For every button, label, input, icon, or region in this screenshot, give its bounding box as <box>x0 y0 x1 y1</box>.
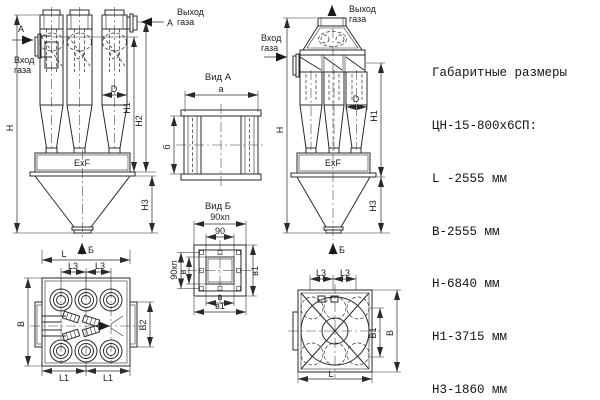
dimensions-spec-panel: Габаритные размеры ЦН-15-800х6СП: L -255… <box>432 30 567 400</box>
plan-view-bottom: L3 L3 В1 В L <box>288 268 401 383</box>
side-elevation-view: Выход газа Вход газа D Ех <box>261 4 390 255</box>
spec-row-B: В-2555 мм <box>432 224 567 242</box>
view-a-title: Вид А <box>205 72 232 83</box>
dim-label-v1-right: в1 <box>250 266 260 276</box>
dim-label-H2: Н2 <box>134 115 144 127</box>
section-a-label: А <box>18 24 24 34</box>
dim-label-v1-bottom: в1 <box>215 301 225 311</box>
section-b-label-right: Б <box>339 245 345 255</box>
dim-label-B-right: В <box>385 330 395 336</box>
dim-label-B2: В2 <box>138 319 148 330</box>
dim-label-L3-c: L3 <box>316 268 326 278</box>
gas-outlet-label-line2: газа <box>177 17 194 27</box>
gas-outlet-label2-line2: газа <box>349 14 366 24</box>
dim-label-a: а <box>218 84 223 94</box>
specs-title: Габаритные размеры <box>432 65 567 83</box>
dim-label-H3-right: Н3 <box>368 200 378 212</box>
box-label-ExF: ЕхF <box>74 158 91 168</box>
dim-label-D: D <box>111 84 118 94</box>
gas-inlet-label2-line1: Вход <box>261 33 282 43</box>
specs-model: ЦН-15-800х6СП: <box>432 118 567 136</box>
dim-label-90: 90 <box>215 226 225 236</box>
spec-row-H: Н-6840 мм <box>432 276 567 294</box>
section-a-label-top: А <box>167 18 173 28</box>
dim-label-H: Н <box>5 125 15 132</box>
dim-label-H1-right: Н1 <box>369 110 379 122</box>
gas-outlet-label2-line1: Выход <box>349 4 377 14</box>
gas-inlet-label-line1: Вход <box>14 55 35 65</box>
dim-label-b: б <box>162 144 172 149</box>
dim-label-L: L <box>61 249 66 259</box>
dim-label-L3-d: L3 <box>340 268 350 278</box>
dim-label-B1: В1 <box>368 327 378 338</box>
technical-drawing-cyclone: А Вход газа А Выход газа Н Н1 Н2 Н3 D L … <box>0 0 600 400</box>
spec-row-H3: Н3-1860 мм <box>432 382 567 400</box>
dim-label-v-left: в <box>178 269 188 274</box>
view-b-detail: Вид Б 90xn 90 90xn в в1 в <box>169 201 260 315</box>
spec-row-H1: Н1-3715 мм <box>432 329 567 347</box>
gas-inlet-label2-line2: газа <box>261 43 278 53</box>
dim-label-L1-b: L1 <box>103 373 113 383</box>
dim-label-L1-a: L1 <box>59 373 69 383</box>
dim-label-D2: D <box>353 94 360 104</box>
view-b-title: Вид Б <box>205 201 231 212</box>
dim-label-H-right: Н <box>275 127 285 134</box>
dim-label-L3-a: L3 <box>68 261 78 271</box>
front-elevation-view: А Вход газа А Выход газа Н Н1 Н2 Н3 D L … <box>5 7 205 264</box>
dim-label-90xn-top: 90xn <box>210 212 230 222</box>
dim-label-L-right: L <box>328 369 333 379</box>
view-a-detail: Вид А а б <box>162 72 266 186</box>
gas-outlet-label-line1: Выход <box>177 7 205 17</box>
dim-label-L3-b: L3 <box>95 261 105 271</box>
dim-label-H3: Н3 <box>140 199 150 211</box>
section-b-label-left: Б <box>88 245 94 255</box>
plan-view-front: L3 L3 L1 L1 В В2 <box>16 261 154 383</box>
spec-row-L: L -2555 мм <box>432 171 567 189</box>
dim-label-B: В <box>16 321 26 327</box>
gas-inlet-label-line2: газа <box>14 65 31 75</box>
dim-label-H1: Н1 <box>122 102 132 114</box>
